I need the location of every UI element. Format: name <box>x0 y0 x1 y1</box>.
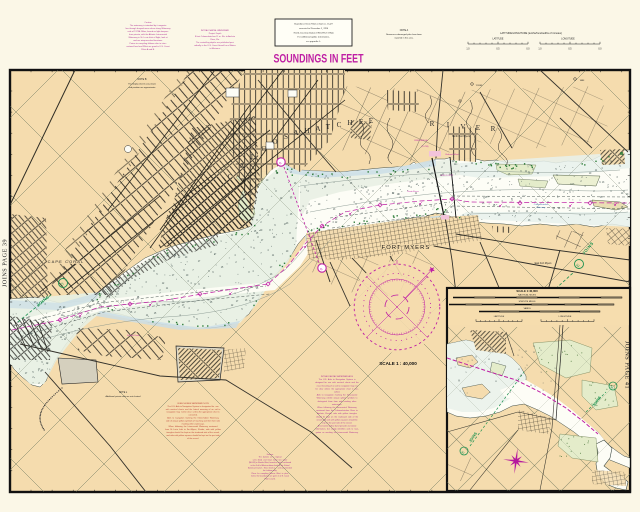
svg-text:A: A <box>315 125 321 133</box>
svg-text:INTRACOASTAL WATERWAY AIDS: INTRACOASTAL WATERWAY AIDS <box>321 375 354 378</box>
svg-text:HOR CL 90 FT: HOR CL 90 FT <box>441 175 454 177</box>
svg-text:Numerous submerged piles have: Numerous submerged piles have been <box>386 33 423 36</box>
svg-text:STATUTE MILES: STATUTE MILES <box>519 300 536 303</box>
svg-text:and aids with yellow squares s: and aids with yellow squares should be k… <box>166 434 220 437</box>
svg-text:LATITUDE/LONGITUDE (tenths/hun: LATITUDE/LONGITUDE (tenths/hundredths of… <box>500 32 562 35</box>
svg-text:kept on the port side of the v: kept on the port side of the vessel. <box>322 422 353 425</box>
svg-text:The U.S. Aids to Navigatio: The U.S. Aids to Navigation System is <box>318 378 355 381</box>
svg-text:TOWER: TOWER <box>476 85 483 87</box>
svg-text:NOTE A: NOTE A <box>400 29 409 32</box>
svg-text:designed for use with naut: designed for use with nautical charts an… <box>315 381 359 384</box>
svg-text:exact meaning of an aid to nav: exact meaning of an aid to navigation ma… <box>317 384 358 387</box>
svg-text:westward from the Caloosaha: westward from the Caloosahatchee River t… <box>316 409 358 412</box>
svg-text:SCALE 1 : 40,000: SCALE 1 : 40,000 <box>379 361 417 366</box>
svg-text:OKEECHOBEE WATERWAY NOTE: OKEECHOBEE WATERWAY NOTE <box>177 402 210 405</box>
svg-text:The U.S. Aids to Navigation Sy: The U.S. Aids to Navigation System is de… <box>167 405 219 408</box>
svg-text:E: E <box>476 124 481 132</box>
svg-text:For additional update informat: For additional update information, <box>297 36 329 39</box>
svg-text:Caloosahatchee: Caloosahatchee <box>534 203 549 206</box>
svg-text:NOTE L: NOTE L <box>119 392 128 394</box>
svg-text:Petros to compiling follows re: Petros to compiling follows refer to int… <box>129 42 166 45</box>
svg-text:Aids to navigation marking: Aids to navigation marking the Okeechobe… <box>167 417 218 420</box>
svg-text:CAPE CORAL: CAPE CORAL <box>48 259 85 264</box>
svg-text:Waterway: Waterway <box>537 206 547 209</box>
svg-text:reported in this area.: reported in this area. <box>394 36 413 39</box>
svg-text:When following the Intracoa: When following the Intracoastal Waterway <box>317 406 356 409</box>
svg-text:O: O <box>261 145 266 153</box>
svg-text:sulted.: sulted. <box>334 391 340 394</box>
svg-text:mile of TOTAL Miles, based on: mile of TOTAL Miles, based on light-keep… <box>128 30 169 33</box>
svg-text:American Datum. Since level a: American Datum. Since level at... and ar… <box>248 467 292 470</box>
svg-text:JOINS PAGE 41: JOINS PAGE 41 <box>624 341 631 389</box>
svg-text:of the vessel.: of the vessel. <box>187 437 199 440</box>
svg-text:FIXED BRIDGE: FIXED BRIDGE <box>414 140 428 142</box>
svg-text:8 feet Caloosahatchee R. m. Fl: 8 feet Caloosahatchee R. m. Fla. to Ancl… <box>195 35 236 38</box>
svg-text:waterways.: waterways. <box>332 403 342 406</box>
svg-text:The controlling depths are pub: The controlling depths are published per… <box>196 41 235 44</box>
svg-text:JOINS PAGE 39: JOINS PAGE 39 <box>2 239 9 287</box>
svg-text:North Fort Myers: North Fort Myers <box>452 135 471 138</box>
svg-text:from private, with the Atlanti: from private, with the Atlantic Intracoa… <box>129 33 167 36</box>
svg-text:H: H <box>304 127 309 135</box>
svg-text:Waterway exhibit unique yel: Waterway exhibit unique yellow symbols t… <box>317 397 359 400</box>
svg-text:LONGITUDE: LONGITUDE <box>561 39 575 41</box>
svg-text:Pilot 5 and 6.: Pilot 5 and 6. <box>264 477 276 480</box>
svg-text:YARDS: YARDS <box>523 307 531 310</box>
svg-text:from St. Lucie Inlet to Fo: from St. Lucie Inlet to Fort Myers, Flor… <box>165 428 221 431</box>
svg-text:LATITUDE: LATITUDE <box>493 38 504 41</box>
svg-text:side of unique yellow symbols: side of unique yellow symbols of reachin… <box>166 419 221 422</box>
svg-text:L: L <box>251 153 255 161</box>
svg-text:NOTE B: NOTE B <box>138 78 147 81</box>
svg-text:FORT MYERS: FORT MYERS <box>382 245 431 251</box>
svg-text:should be kept on the sta: should be kept on the starboard side of … <box>316 415 359 418</box>
svg-text:Pilots A and B.: Pilots A and B. <box>141 48 155 51</box>
svg-text:O: O <box>272 138 277 146</box>
svg-text:SCALE 1:40,000: SCALE 1:40,000 <box>516 289 538 293</box>
svg-text:TANK: TANK <box>580 79 585 82</box>
svg-text:Additional private aids are no: Additional private aids are not charted <box>106 395 142 398</box>
svg-text:Datums: Datums <box>267 453 274 456</box>
svg-text:LATITUDE: LATITUDE <box>494 315 505 318</box>
svg-text:NAUTICAL MILES: NAUTICAL MILES <box>518 294 536 297</box>
svg-text:S: S <box>284 133 288 141</box>
svg-text:River, Fla.: River, Fla. <box>210 38 220 41</box>
svg-text:Anclote, Florida, aids with: Anclote, Florida, aids with yellow trian… <box>317 412 357 415</box>
svg-text:Project Depth: Project Depth <box>209 32 222 35</box>
svg-text:Reproduced from NOAA chart no.: Reproduced from NOAA chart no. 11427 <box>294 23 333 26</box>
svg-text:line through buoyed areas when: line through buoyed areas when along Wat… <box>126 27 172 30</box>
svg-text:LONGITUDE: LONGITUDE <box>559 316 572 318</box>
svg-text:triangles should be kept on t: triangles should be kept on the starboar… <box>166 431 220 434</box>
svg-text:A: A <box>293 129 299 137</box>
svg-text:be clear unless the approp: be clear unless the appropriate chart is… <box>316 387 359 390</box>
svg-text:odically in the U.S. Coast Gua: odically in the U.S. Coast Guard Local N… <box>194 44 236 47</box>
svg-text:Aids to navigation marking: Aids to navigation marking the Intracoas… <box>317 394 358 397</box>
svg-text:information, but simply ide: information, but simply identifies aids … <box>315 428 358 431</box>
svg-text:to Mariners.: to Mariners. <box>210 47 221 50</box>
svg-text:vessel and aids with yellow sq: vessel and aids with yellow squares shou… <box>317 418 359 421</box>
svg-text:Plans for compiling Marine: Plans for compiling Marine West to plan- <box>251 472 288 475</box>
svg-text:East Fort Myers: East Fort Myers <box>535 262 553 265</box>
svg-text:units (feet) and mean lowe: units (feet) and mean lower low water <box>253 458 288 461</box>
svg-text:national feed and What are goo: national feed and What are good in U.S. … <box>127 45 170 48</box>
svg-text:metric the boundaries are give: metric the boundaries are given in U.S. … <box>251 475 290 478</box>
svg-text:Railroad Wharf: Railroad Wharf <box>445 154 459 156</box>
svg-text:E: E <box>369 117 374 125</box>
svg-text:V: V <box>460 123 466 131</box>
svg-text:for it datum only.: for it datum only. <box>263 469 277 472</box>
svg-text:corrected to November 2, 1996: corrected to November 2, 1996 <box>299 27 329 30</box>
svg-text:consulted.: consulted. <box>188 414 198 417</box>
svg-text:R: R <box>491 125 496 133</box>
svg-text:The displacements are private: The displacements are private <box>128 82 157 85</box>
svg-text:When following the Intracoa: When following the Intracoastal Waterway… <box>169 425 218 428</box>
svg-text:navigation may not be clear: navigation may not be clear unless the a… <box>167 411 220 414</box>
svg-text:Punta Rassa: Punta Rassa <box>407 190 419 193</box>
svg-text:marking other waterways.: marking other waterways. <box>182 422 205 425</box>
svg-text:Caution: Caution <box>144 21 152 24</box>
svg-text:SOUNDINGS IN FEET: SOUNDINGS IN FEET <box>274 54 364 66</box>
svg-text:in the Gulf of Mexico datum le: in the Gulf of Mexico datum level of the… <box>251 464 290 467</box>
svg-text:Waterway in St. Lucie Inlet of: Waterway in St. Lucie Inlet of flight, l… <box>128 36 168 39</box>
svg-text:(19.7M): (19.7M) <box>422 146 429 148</box>
svg-text:with nautical charts and t: with nautical charts and the lateral mea… <box>166 408 221 411</box>
svg-text:and position are approximate: and position are approximate <box>129 86 157 89</box>
svg-text:see appendix A.: see appendix A. <box>306 40 321 43</box>
svg-text:The datums on a tropical: The datums on a tropical <box>259 456 282 459</box>
svg-text:R: R <box>430 120 435 128</box>
svg-text:gation as marking the Intr: gation as marking the Intracoastal Water… <box>316 431 359 434</box>
svg-text:C: C <box>228 173 233 181</box>
svg-text:Redfish Point: Redfish Point <box>127 334 139 337</box>
svg-text:H: H <box>347 119 352 127</box>
svg-text:The waterway is intended by it: The waterway is intended by it magenta <box>130 24 167 27</box>
svg-text:A horizontal yellow band provi: A horizontal yellow band provides no lat… <box>318 425 357 428</box>
svg-text:INTRACOASTAL WATERWAY: INTRACOASTAL WATERWAY <box>201 29 230 32</box>
svg-text:T: T <box>326 123 331 131</box>
svg-text:North American Datum 1983 (WGS: North American Datum 1983 (WGS 1984) <box>294 31 334 34</box>
svg-text:A: A <box>239 162 245 170</box>
svg-text:E: E <box>359 118 364 126</box>
svg-text:and are misprearched locations: and are misprearched locations. <box>133 39 163 42</box>
svg-text:C: C <box>337 121 342 129</box>
svg-text:(MLLW) in Florida West, based: (MLLW) in Florida West, based on tenth n… <box>249 461 291 464</box>
svg-text:distinguish them from aids: distinguish them from aids marking other <box>318 400 357 403</box>
